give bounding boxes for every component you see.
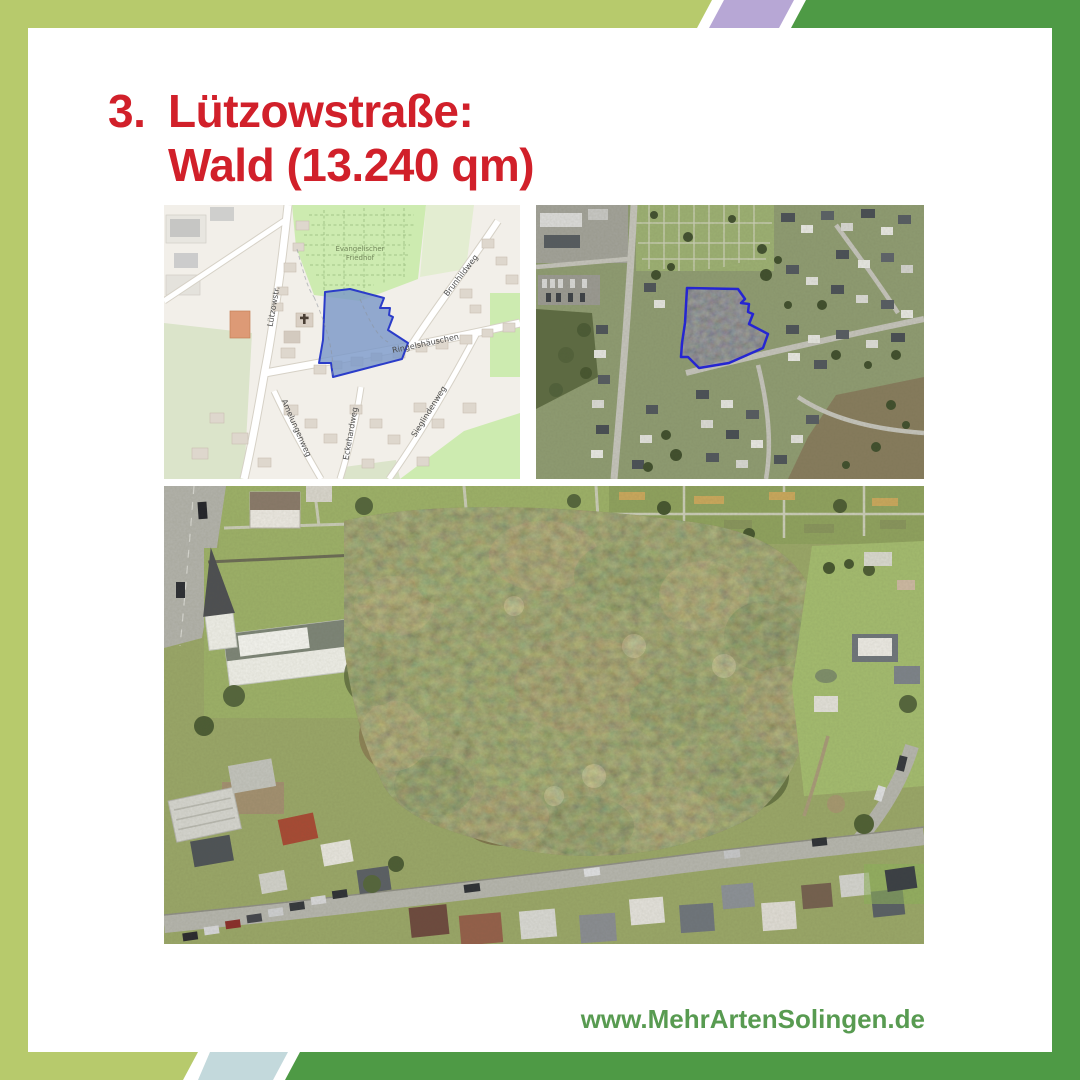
street-map-image: Evangelischer Friedhof Lützowstr. Brunhi… (164, 205, 520, 479)
title-number: 3. (108, 84, 168, 192)
frame-bottom-paleblue-stripe (198, 1052, 288, 1080)
cemetery-label-line2: Friedhof (346, 254, 375, 262)
photo-grain-overlay (164, 486, 924, 944)
satellite-map-image (536, 205, 924, 479)
frame-top-lightgreen (0, 0, 712, 28)
page-title: 3. Lützowstraße: Wald (13.240 qm) (108, 84, 534, 192)
frame-right-band (1052, 0, 1080, 1080)
frame-top-lavender-stripe (709, 0, 794, 28)
church-icon (296, 313, 313, 327)
cemetery-label-line1: Evangelischer (335, 245, 384, 253)
website-url: www.MehrArtenSolingen.de (581, 1004, 925, 1035)
frame-top-darkgreen (791, 0, 1080, 28)
aerial-photo-image (164, 486, 924, 944)
frame-bottom-darkgreen (285, 1052, 1080, 1080)
sat-grain-overlay (536, 205, 924, 479)
title-lines: Lützowstraße: Wald (13.240 qm) (168, 84, 534, 192)
frame-left-band (0, 0, 28, 1080)
title-line2: Wald (13.240 qm) (168, 138, 534, 192)
frame-bottom-lightgreen (0, 1052, 198, 1080)
title-line1: Lützowstraße: (168, 84, 534, 138)
orange-building (230, 311, 250, 338)
